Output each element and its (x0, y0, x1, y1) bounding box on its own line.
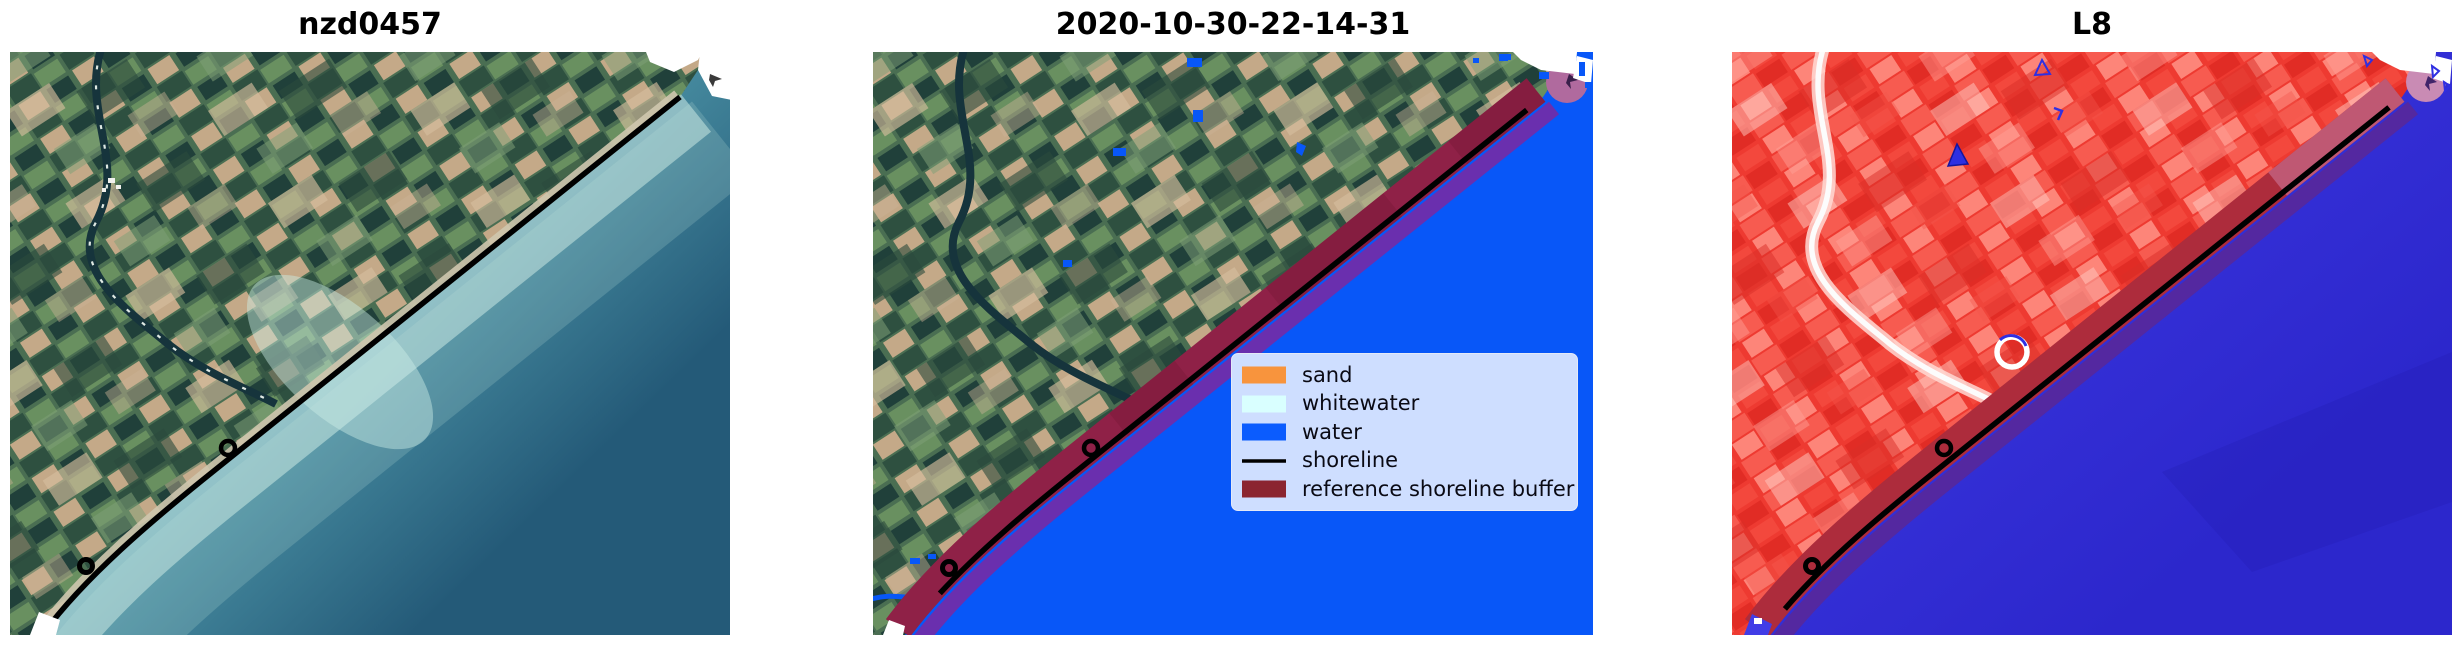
river-mouth-patch (1754, 618, 1762, 624)
panel-title-date: 2020-10-30-22-14-31 (873, 8, 1593, 42)
legend: sand whitewater water shoreline (1231, 353, 1578, 511)
legend-row-sand: sand (1242, 362, 1567, 388)
legend-label: whitewater (1302, 393, 1419, 414)
legend-row-reference-buffer: reference shoreline buffer (1242, 476, 1567, 502)
falsecolor-image (1732, 52, 2452, 635)
sand-swatch (1242, 366, 1286, 384)
legend-label: shoreline (1302, 450, 1398, 471)
legend-row-water: water (1242, 419, 1567, 445)
panel-l8: L8 (1732, 0, 2452, 651)
satellite-rgb-image (10, 52, 730, 635)
legend-row-whitewater: whitewater (1242, 391, 1567, 417)
reference-buffer-swatch (1242, 480, 1286, 498)
water-swatch (1242, 423, 1286, 441)
legend-row-shoreline: shoreline (1242, 448, 1567, 474)
figure-canvas: nzd0457 (0, 0, 2460, 651)
panel-title-sitename: nzd0457 (10, 8, 730, 42)
whitewater-swatch (1242, 395, 1286, 413)
panel-rgb: nzd0457 (10, 0, 730, 651)
legend-label: water (1302, 422, 1362, 443)
panel-title-satellite: L8 (1732, 8, 2452, 42)
legend-label: reference shoreline buffer (1302, 479, 1574, 500)
panel-classified: 2020-10-30-22-14-31 (873, 0, 1593, 651)
legend-label: sand (1302, 365, 1352, 386)
classified-image (873, 52, 1593, 635)
shoreline-line-swatch (1242, 452, 1286, 470)
